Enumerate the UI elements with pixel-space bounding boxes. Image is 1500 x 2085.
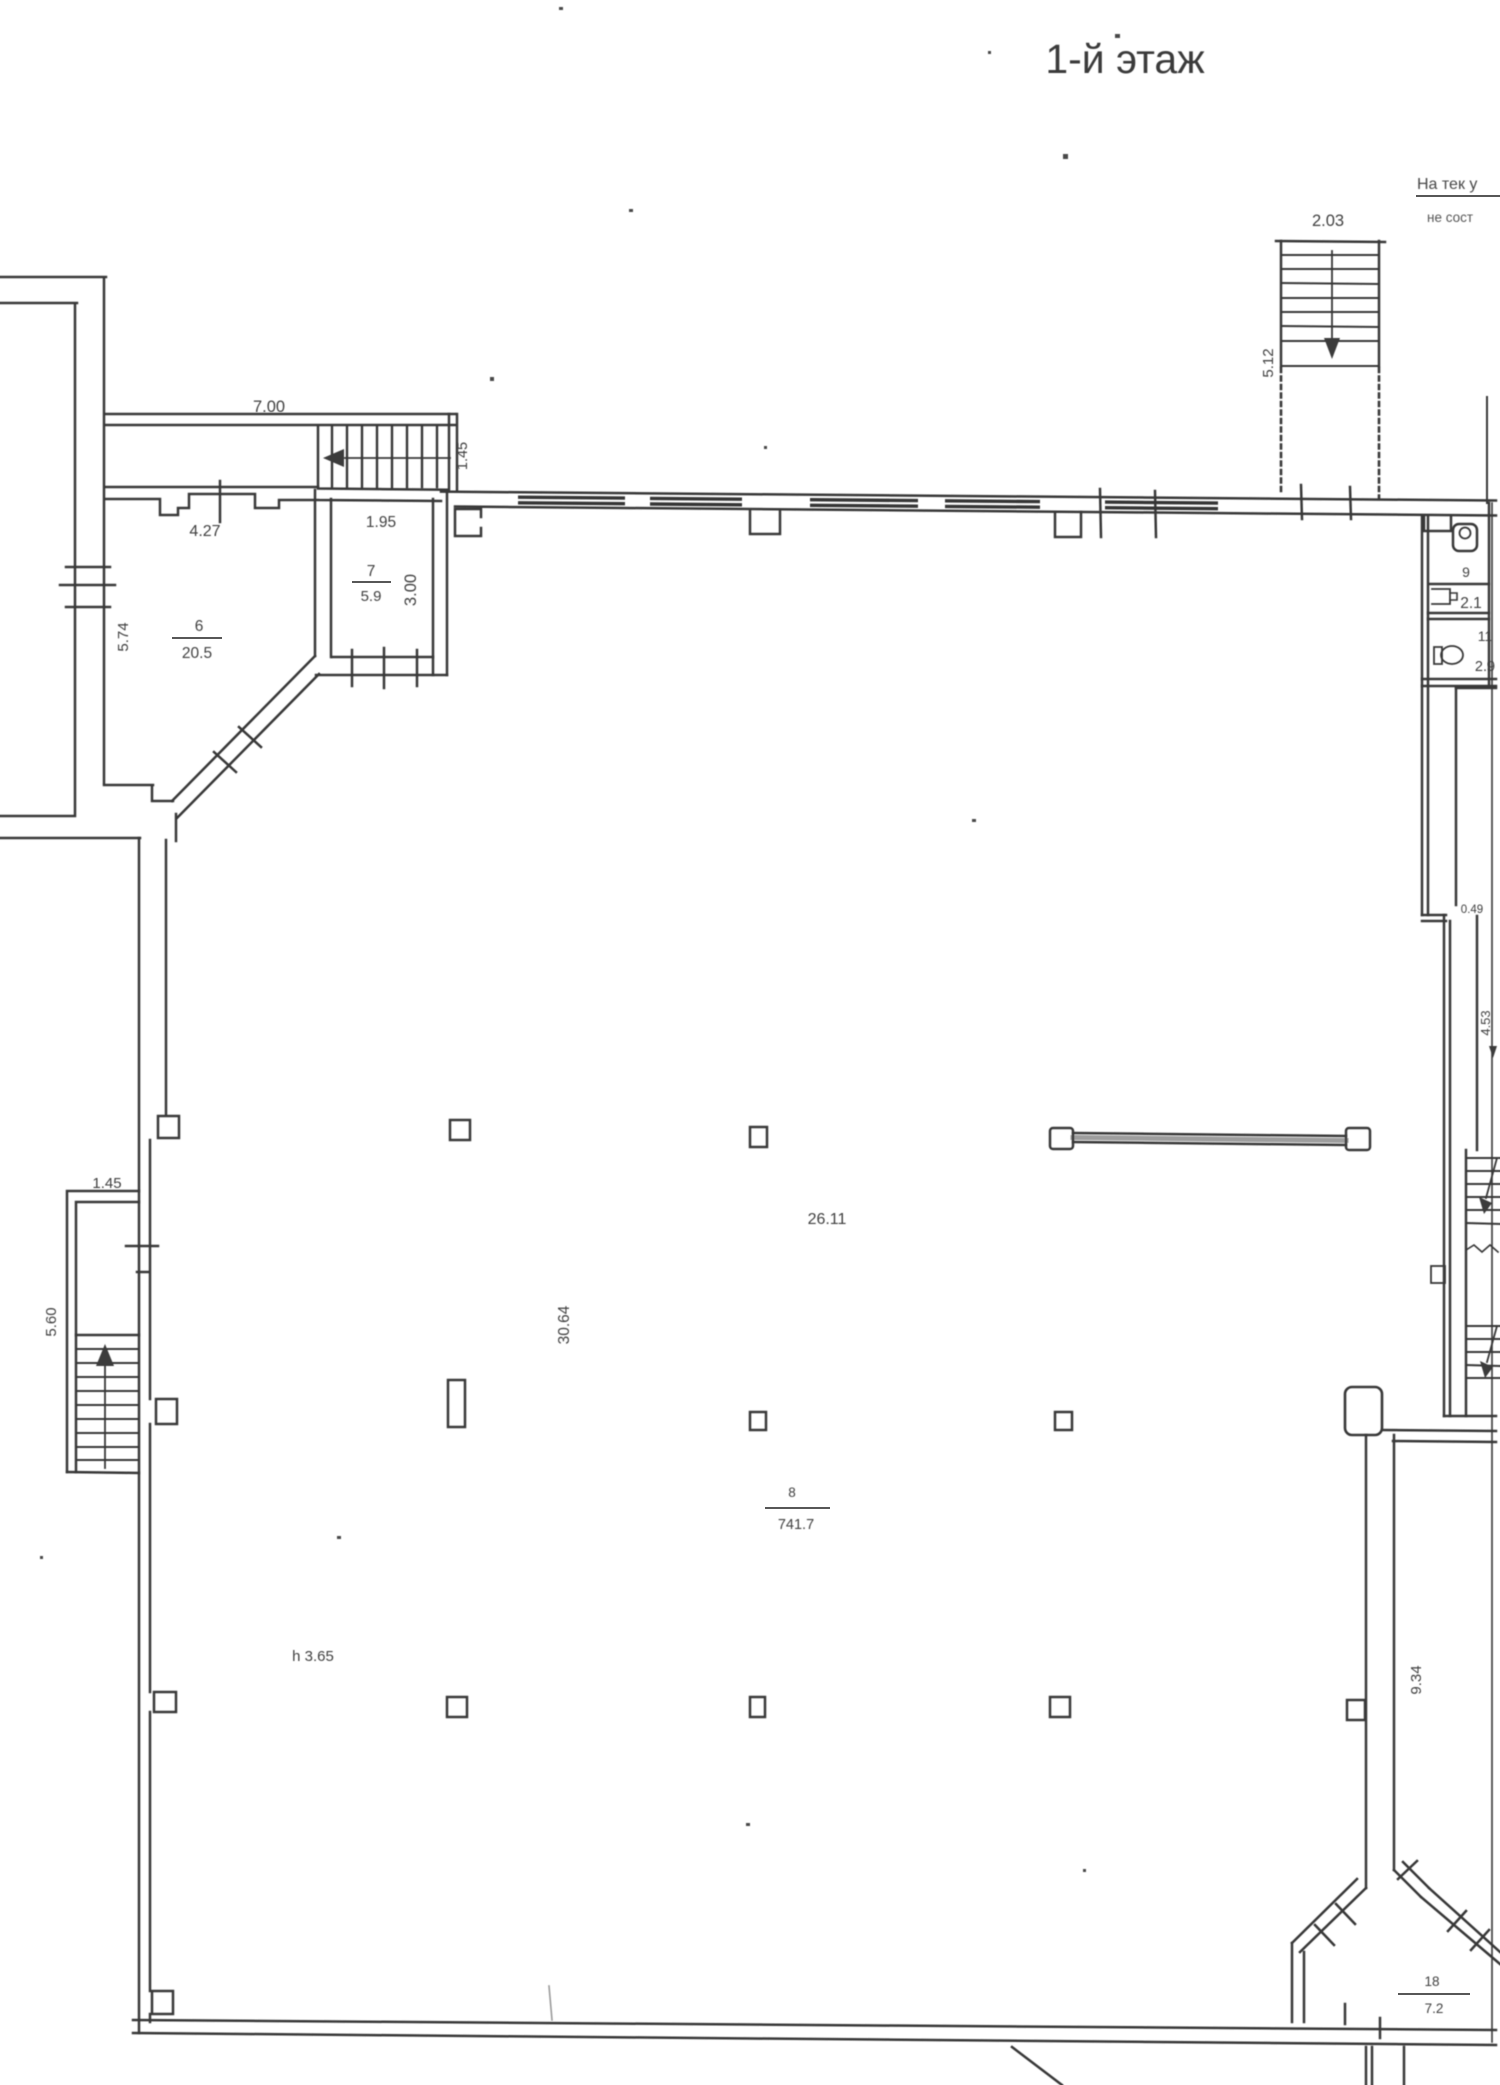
svg-text:18: 18 <box>1424 1974 1439 1989</box>
svg-text:1.95: 1.95 <box>366 514 396 531</box>
svg-text:9.34: 9.34 <box>1408 1665 1425 1694</box>
svg-text:26.11: 26.11 <box>808 1211 847 1228</box>
svg-text:2.9: 2.9 <box>1475 659 1495 675</box>
svg-text:7.2: 7.2 <box>1425 2001 1444 2016</box>
svg-text:8: 8 <box>788 1485 796 1500</box>
svg-text:2.03: 2.03 <box>1312 212 1344 230</box>
svg-text:7: 7 <box>367 563 376 580</box>
svg-text:На тек у: На тек у <box>1417 176 1477 193</box>
svg-text:5.9: 5.9 <box>361 588 382 605</box>
svg-text:5.60: 5.60 <box>43 1307 60 1336</box>
svg-text:30.64: 30.64 <box>556 1305 573 1344</box>
svg-text:7.00: 7.00 <box>253 398 285 416</box>
svg-text:6: 6 <box>195 618 204 635</box>
svg-text:1.45: 1.45 <box>455 442 471 470</box>
svg-text:4.53: 4.53 <box>1478 1010 1493 1035</box>
svg-text:2.1: 2.1 <box>1460 595 1482 612</box>
svg-text:1-й этаж: 1-й этаж <box>1045 36 1205 82</box>
svg-text:5.12: 5.12 <box>1260 348 1277 377</box>
svg-text:11: 11 <box>1478 628 1493 644</box>
svg-text:3.00: 3.00 <box>402 574 420 606</box>
svg-text:741.7: 741.7 <box>778 1517 814 1533</box>
svg-text:не сост: не сост <box>1427 210 1473 225</box>
svg-text:1.45: 1.45 <box>92 1175 121 1192</box>
svg-text:4.27: 4.27 <box>189 523 220 540</box>
svg-text:0.49: 0.49 <box>1461 904 1483 916</box>
svg-text:20.5: 20.5 <box>182 645 212 662</box>
svg-text:9: 9 <box>1462 564 1470 580</box>
svg-text:h 3.65: h 3.65 <box>292 1648 334 1665</box>
svg-text:5.74: 5.74 <box>115 622 132 651</box>
